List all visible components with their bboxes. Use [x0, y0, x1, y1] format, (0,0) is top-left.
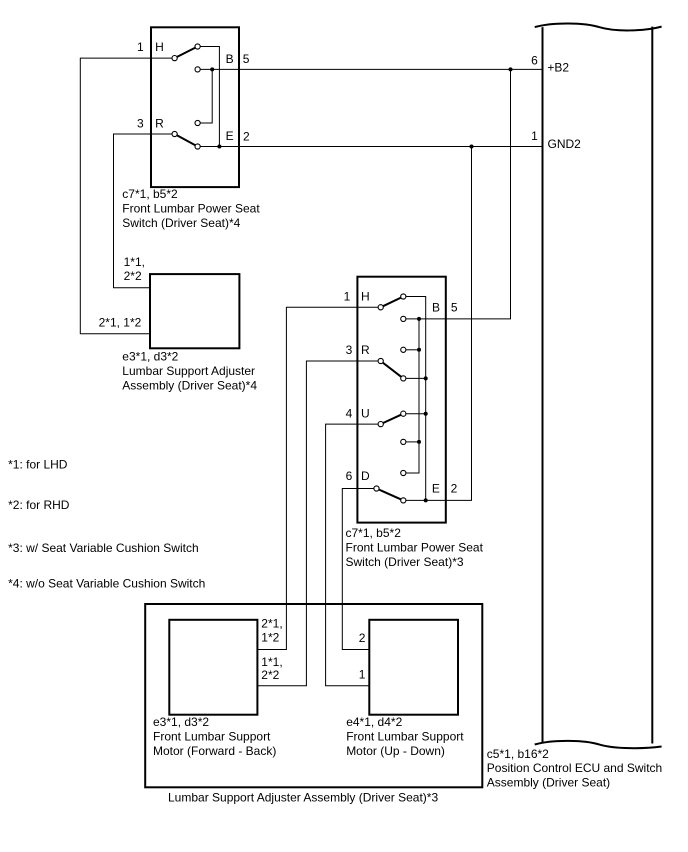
svg-text:c5*1, b16*2: c5*1, b16*2 — [487, 747, 549, 761]
svg-text:2*1, 1*2: 2*1, 1*2 — [99, 315, 142, 329]
svg-text:*1: for LHD: *1: for LHD — [8, 458, 68, 472]
svg-text:e3*1, d3*2: e3*1, d3*2 — [153, 715, 209, 729]
svg-text:2*2: 2*2 — [261, 668, 279, 682]
svg-text:Lumbar Support Adjuster Assemb: Lumbar Support Adjuster Assembly (Driver… — [168, 790, 438, 804]
svg-text:D: D — [361, 469, 370, 483]
svg-text:1*1,: 1*1, — [124, 255, 145, 269]
svg-text:+B2: +B2 — [547, 61, 569, 75]
svg-text:E: E — [432, 481, 440, 495]
svg-text:Motor (Up - Down): Motor (Up - Down) — [346, 744, 445, 758]
svg-text:B: B — [226, 52, 234, 66]
svg-text:Front Lumbar Support: Front Lumbar Support — [346, 730, 464, 744]
svg-text:*2: for RHD: *2: for RHD — [8, 498, 70, 512]
svg-text:*4: w/o Seat Variable Cushion: *4: w/o Seat Variable Cushion Switch — [8, 576, 205, 590]
svg-text:Position Control ECU and Switc: Position Control ECU and Switch — [487, 761, 662, 775]
svg-text:*3: w/ Seat Variable Cushion S: *3: w/ Seat Variable Cushion Switch — [8, 541, 199, 555]
svg-text:R: R — [361, 343, 370, 357]
svg-text:3: 3 — [346, 343, 353, 357]
svg-text:GND2: GND2 — [548, 137, 582, 151]
svg-text:Lumbar Support Adjuster: Lumbar Support Adjuster — [122, 364, 255, 378]
svg-text:R: R — [155, 116, 164, 130]
svg-text:1*2: 1*2 — [261, 631, 279, 645]
svg-text:1: 1 — [359, 668, 366, 682]
svg-text:B: B — [432, 301, 440, 315]
svg-text:6: 6 — [346, 469, 353, 483]
svg-text:1: 1 — [531, 129, 538, 143]
svg-text:Assembly (Driver Seat): Assembly (Driver Seat) — [487, 775, 610, 789]
svg-text:Front Lumbar Support: Front Lumbar Support — [153, 730, 271, 744]
svg-text:5: 5 — [243, 52, 250, 66]
svg-text:1: 1 — [137, 40, 144, 54]
svg-text:2: 2 — [243, 129, 250, 143]
svg-text:1*1,: 1*1, — [261, 655, 282, 669]
svg-text:c7*1, b5*2: c7*1, b5*2 — [346, 526, 402, 540]
svg-text:U: U — [361, 407, 370, 421]
svg-text:H: H — [361, 290, 370, 304]
svg-text:Front Lumbar Power Seat: Front Lumbar Power Seat — [122, 201, 260, 215]
svg-text:c7*1, b5*2: c7*1, b5*2 — [122, 187, 178, 201]
svg-text:e3*1, d3*2: e3*1, d3*2 — [122, 349, 178, 363]
svg-text:H: H — [155, 40, 164, 54]
svg-text:e4*1, d4*2: e4*1, d4*2 — [346, 715, 402, 729]
svg-text:4: 4 — [346, 407, 353, 421]
svg-text:Assembly (Driver Seat)*4: Assembly (Driver Seat)*4 — [122, 378, 257, 392]
svg-text:6: 6 — [531, 54, 538, 68]
svg-text:5: 5 — [451, 301, 458, 315]
svg-text:Motor (Forward - Back): Motor (Forward - Back) — [153, 744, 276, 758]
svg-text:2*1,: 2*1, — [261, 617, 282, 631]
svg-text:1: 1 — [344, 290, 351, 304]
svg-text:2: 2 — [451, 481, 458, 495]
svg-text:Switch (Driver Seat)*3: Switch (Driver Seat)*3 — [346, 555, 464, 569]
svg-text:3: 3 — [137, 116, 144, 130]
svg-text:2: 2 — [359, 631, 366, 645]
svg-text:2*2: 2*2 — [124, 269, 142, 283]
svg-text:E: E — [226, 129, 234, 143]
svg-text:Front Lumbar Power Seat: Front Lumbar Power Seat — [346, 541, 484, 555]
svg-text:Switch (Driver Seat)*4: Switch (Driver Seat)*4 — [122, 216, 240, 230]
